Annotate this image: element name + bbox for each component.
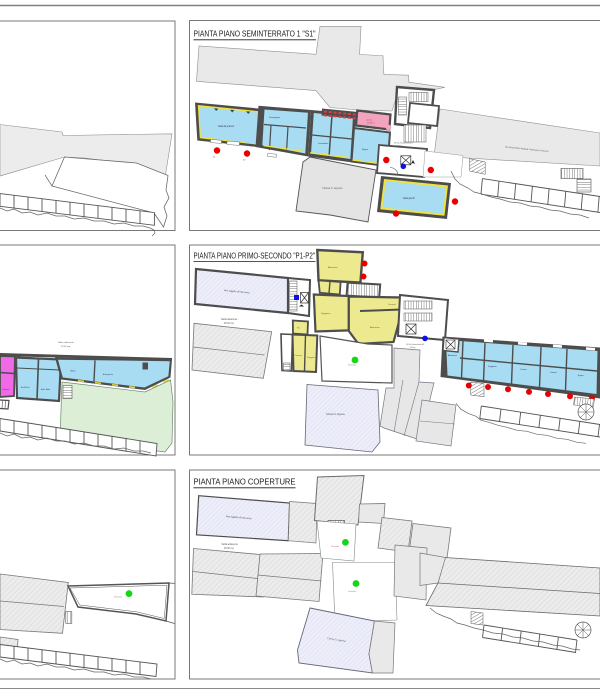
svg-text:Terrazzo: Terrazzo bbox=[388, 304, 397, 306]
svg-text:PIANTA PIANO COPERTURE: PIANTA PIANO COPERTURE bbox=[194, 478, 296, 487]
svg-text:Chiesa S. Agnese: Chiesa S. Agnese bbox=[326, 413, 346, 416]
svg-text:A+A 38 m: A+A 38 m bbox=[21, 386, 30, 389]
svg-text:Asilo Nido: Asilo Nido bbox=[41, 388, 51, 391]
svg-text:Abitazione: Abitazione bbox=[328, 266, 339, 269]
svg-text:Wc: Wc bbox=[297, 328, 300, 330]
svg-text:Aula giochi: Aula giochi bbox=[103, 373, 113, 376]
svg-text:Cucina: Cucina bbox=[366, 120, 373, 122]
svg-text:Ufficio: Ufficio bbox=[70, 371, 76, 373]
svg-text:Sala giochi: Sala giochi bbox=[403, 197, 415, 200]
svg-text:Lavanderia: Lavanderia bbox=[318, 142, 329, 145]
svg-text:2/6 Via Gioacchino A. F.: 2/6 Via Gioacchino A. F. bbox=[394, 142, 414, 145]
svg-text:2/6 Via Gioacchino A.F.: 2/6 Via Gioacchino A.F. bbox=[406, 343, 425, 346]
svg-text:Terrazza: Terrazza bbox=[348, 590, 357, 593]
svg-text:Salita adiacente: Salita adiacente bbox=[58, 341, 74, 344]
svg-text:PIANTA PIANO SEMINTERRATO 1 "S: PIANTA PIANO SEMINTERRATO 1 "S1" bbox=[194, 30, 316, 39]
svg-text:Salita adiacente: Salita adiacente bbox=[221, 318, 238, 321]
svg-text:Camera: Camera bbox=[2, 389, 10, 391]
svg-text:25 fino: 25 fino bbox=[397, 146, 402, 148]
svg-text:Sala da pranzo: Sala da pranzo bbox=[218, 125, 235, 128]
svg-text:PIANTA PIANO PRIMO-SECONDO "P1: PIANTA PIANO PRIMO-SECONDO "P1-P2" bbox=[194, 252, 316, 261]
svg-text:25.00 mq: 25.00 mq bbox=[61, 346, 71, 348]
svg-text:Soggiorno: Soggiorno bbox=[488, 365, 497, 368]
svg-text:Chiesa S. Agnese: Chiesa S. Agnese bbox=[322, 186, 343, 190]
svg-text:Terrazzo: Terrazzo bbox=[114, 596, 123, 599]
svg-text:Salita adiacente: Salita adiacente bbox=[222, 543, 239, 546]
svg-text:Soggiorno: Soggiorno bbox=[307, 356, 317, 359]
svg-text:Terrazzo: Terrazzo bbox=[348, 364, 357, 367]
svg-text:Camera: Camera bbox=[550, 371, 558, 374]
svg-text:Camera: Camera bbox=[520, 368, 528, 371]
svg-text:Abitazione: Abitazione bbox=[370, 326, 381, 329]
svg-text:Terrazza: Terrazza bbox=[331, 545, 340, 548]
svg-text:Abitazione: Abitazione bbox=[448, 354, 457, 357]
svg-text:25.00 mq: 25.00 mq bbox=[224, 323, 234, 325]
svg-text:25.00 mq: 25.00 mq bbox=[224, 548, 234, 550]
svg-text:Bagno: Bagno bbox=[578, 375, 583, 377]
svg-text:Bagno: Bagno bbox=[362, 149, 369, 151]
svg-text:Disimpegno: Disimpegno bbox=[269, 117, 281, 119]
svg-text:25 fino: 25 fino bbox=[410, 347, 415, 349]
svg-text:Soggiorno: Soggiorno bbox=[321, 312, 331, 315]
svg-text:23.68 m: 23.68 m bbox=[367, 123, 375, 125]
svg-text:Camera: Camera bbox=[295, 354, 303, 357]
